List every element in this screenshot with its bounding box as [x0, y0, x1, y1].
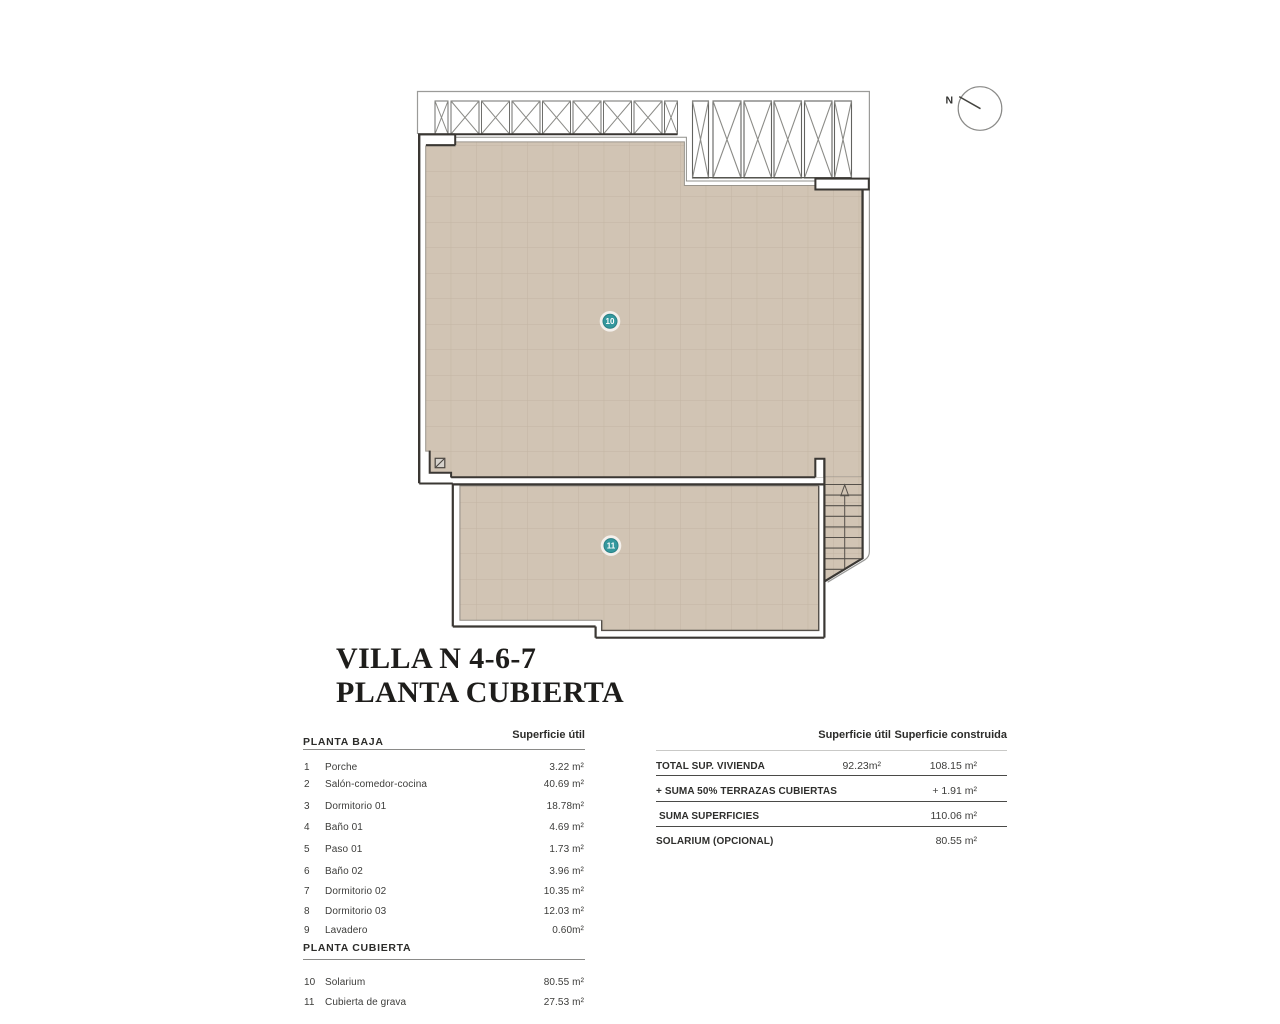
svg-text:N: N — [946, 95, 954, 107]
svg-text:10: 10 — [606, 317, 615, 326]
svg-text:11: 11 — [607, 541, 616, 550]
